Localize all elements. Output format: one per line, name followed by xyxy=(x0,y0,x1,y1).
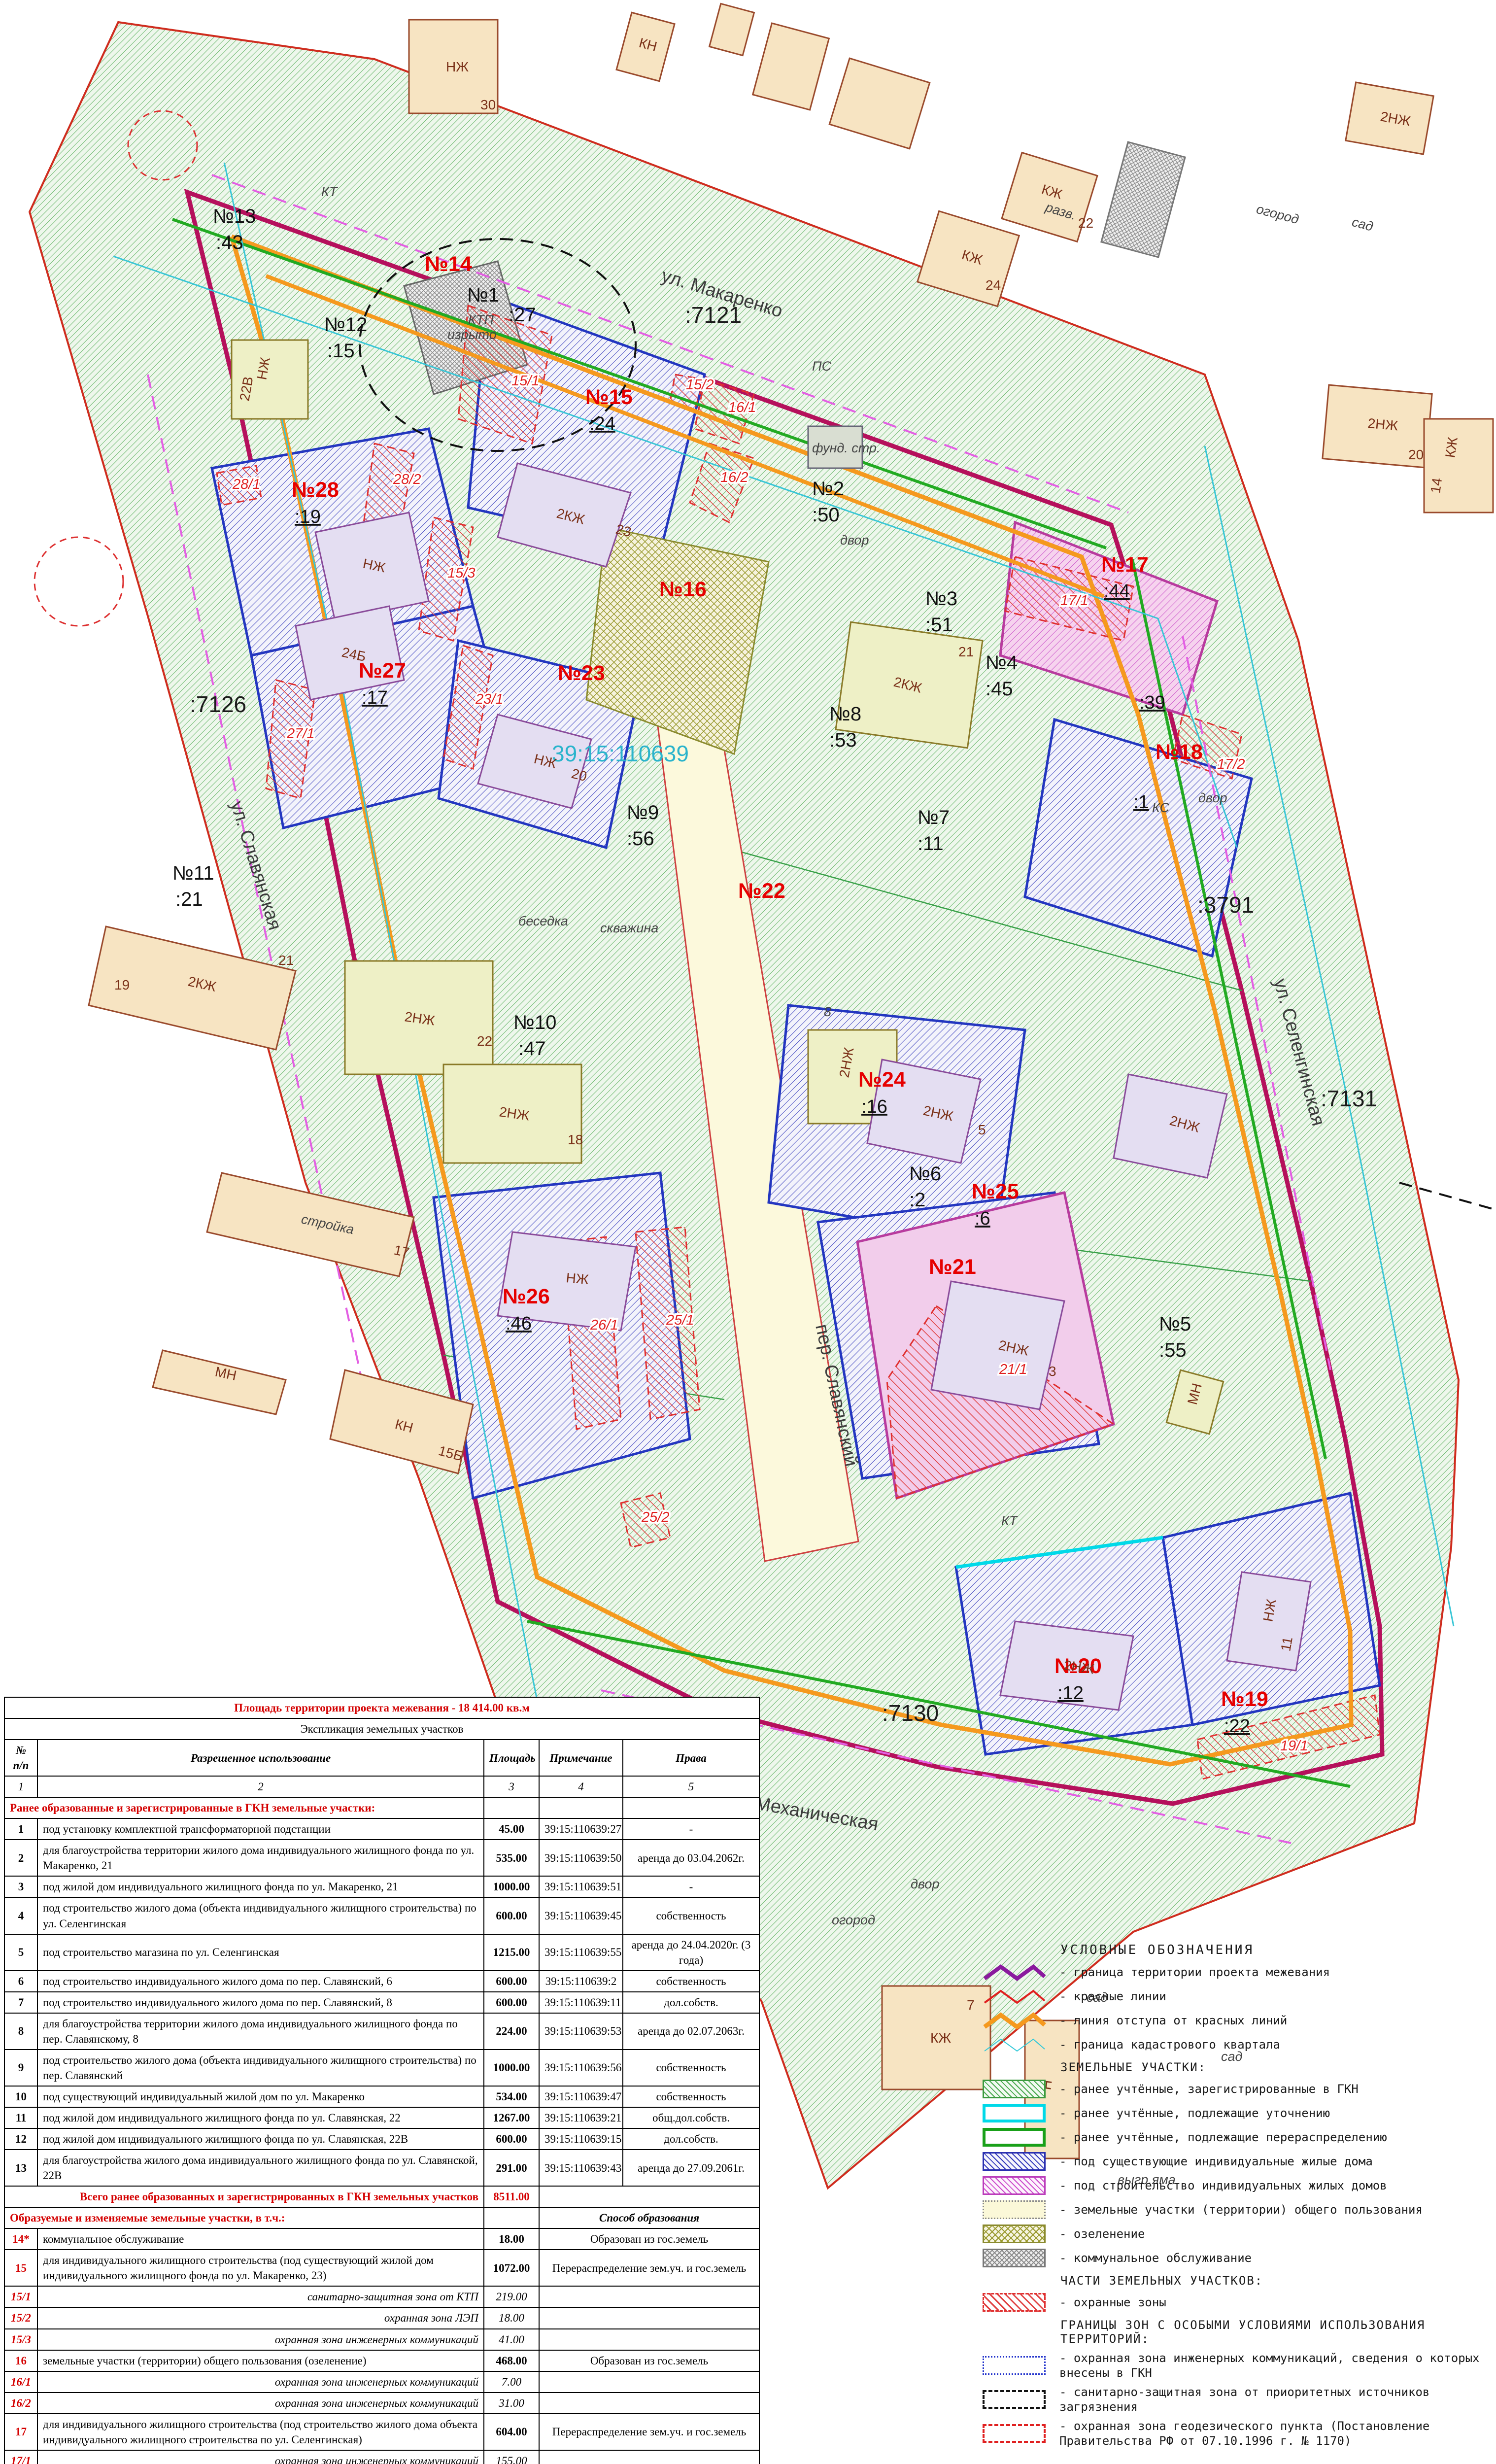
table-cell: под строительство жилого дома (объекта и… xyxy=(37,1897,484,1934)
table-cell: 39:15:110639:43 xyxy=(539,2150,623,2186)
map-label: №28 xyxy=(292,478,339,502)
table-row: 16/2охранная зона инженерных коммуникаци… xyxy=(4,2393,759,2414)
map-label: 21 xyxy=(958,644,974,659)
legend-swatch xyxy=(982,2103,1047,2123)
map-label: 20 xyxy=(1408,447,1424,462)
map-label: КС xyxy=(1152,800,1170,815)
legend-swatch xyxy=(982,2200,1047,2220)
drawing-sheet: ул. Макаренкоул. Славянскаяпер. Славянск… xyxy=(0,0,1496,2464)
map-label: :7130 xyxy=(882,1700,939,1726)
table-row: 2для благоустройства территории жилого д… xyxy=(4,1840,759,1876)
map-label: 23/1 xyxy=(475,691,503,707)
legend-label: - озеленение xyxy=(1059,2226,1145,2241)
table-cell: 41.00 xyxy=(484,2329,539,2350)
table-row: 1под установку комплектной трансформатор… xyxy=(4,1818,759,1840)
map-label: :7126 xyxy=(190,691,246,717)
legend-swatch xyxy=(982,2424,1047,2443)
table-cell: под жилой дом индивидуального жилищного … xyxy=(37,1876,484,1897)
table-row: 14*коммунальное обслуживание18.00Образов… xyxy=(4,2228,759,2250)
map-label: КТ xyxy=(1001,1513,1019,1528)
table-cell: 15/2 xyxy=(4,2307,37,2328)
table-row: 4под строительство жилого дома (объекта … xyxy=(4,1897,759,1934)
map-label: 28/2 xyxy=(393,472,421,487)
legend-swatch xyxy=(982,2224,1047,2244)
table-cell: 39:15:110639:47 xyxy=(539,2086,623,2107)
map-label: №12 xyxy=(324,314,367,336)
legend-item: - охранные зоны xyxy=(982,2293,1494,2312)
map-label: №6 xyxy=(909,1163,941,1185)
map-label: 3 xyxy=(1049,1364,1056,1379)
map-label: 22 xyxy=(1078,215,1093,231)
table-row: 8для благоустройства территории жилого д… xyxy=(4,2013,759,2050)
table-cell: для благоустройства жилого дома индивиду… xyxy=(37,2150,484,2186)
table-cell: 39:15:110639:2 xyxy=(539,1971,623,1992)
map-label: беседка xyxy=(518,914,568,928)
map-label: 11 xyxy=(1278,1636,1295,1652)
map-label: №15 xyxy=(585,385,633,409)
map-label: 19 xyxy=(114,977,130,992)
map-label: №2 xyxy=(812,478,844,500)
map-label: №14 xyxy=(425,252,472,276)
table-row: Ранее образованные и зарегистрированные … xyxy=(4,1797,759,1818)
table-cell: 15/1 xyxy=(4,2286,37,2307)
table-cell xyxy=(484,2207,539,2228)
table-cell: Способ образования xyxy=(539,2207,759,2228)
table-row: 6под строительство индивидуального жилог… xyxy=(4,1971,759,1992)
table-cell: Ранее образованные и зарегистрированные … xyxy=(4,1797,484,1818)
legend-swatch xyxy=(982,2293,1047,2312)
map-label: 2НЖ xyxy=(1367,415,1398,433)
map-label: :11 xyxy=(918,833,944,855)
table-cell: 13 xyxy=(4,2150,37,2186)
legend-item: - озеленение xyxy=(982,2224,1494,2244)
table-cell: 535.00 xyxy=(484,1840,539,1876)
legend-item: - ранее учтённые, зарегистрированные в Г… xyxy=(982,2079,1494,2099)
table-cell xyxy=(623,1797,759,1818)
table-cell xyxy=(539,2186,759,2207)
table-cell: коммунальное обслуживание xyxy=(37,2228,484,2250)
legend-swatch xyxy=(982,2356,1047,2375)
table-cell: собственность xyxy=(623,1897,759,1934)
table-cell xyxy=(539,2450,759,2464)
table-cell: санитарно-защитная зона от КТП xyxy=(37,2286,484,2307)
map-label: №23 xyxy=(558,661,605,685)
table-cell: 8 xyxy=(4,2013,37,2050)
table-cell: 39:15:110639:15 xyxy=(539,2128,623,2150)
map-label: :7121 xyxy=(685,302,742,328)
table-row: 17/1охранная зона инженерных коммуникаци… xyxy=(4,2450,759,2464)
map-label: КТП xyxy=(468,312,494,327)
table-cell: 1 xyxy=(4,1818,37,1840)
legend-item: - земельные участки (территории) общего … xyxy=(982,2200,1494,2220)
legend-swatch xyxy=(982,2152,1047,2171)
legend-label: - санитарно-защитная зона от приоритетны… xyxy=(1059,2385,1494,2414)
table-cell xyxy=(539,1797,623,1818)
table-cell: 468.00 xyxy=(484,2350,539,2371)
table-cell: 11 xyxy=(4,2107,37,2128)
table-cell: 39:15:110639:55 xyxy=(539,1934,623,1971)
map-label: 8 xyxy=(824,1004,831,1019)
map-label: НЖ xyxy=(565,1270,589,1287)
map-label: 17/2 xyxy=(1217,756,1245,772)
map-label: 21 xyxy=(278,953,294,968)
table-cell: 39:15:110639:56 xyxy=(539,2050,623,2086)
table-cell: общ.дол.собств. xyxy=(623,2107,759,2128)
table-cell: 5 xyxy=(623,1776,759,1797)
map-label: двор xyxy=(1198,790,1227,805)
map-label: 15/1 xyxy=(511,373,539,389)
map-label: :39 xyxy=(1139,692,1165,713)
map-label: №16 xyxy=(659,578,707,601)
map-label: №22 xyxy=(738,879,785,903)
table-cell: под жилой дом индивидуального жилищного … xyxy=(37,2128,484,2150)
map-label: :45 xyxy=(986,678,1013,700)
table-cell: 15/3 xyxy=(4,2329,37,2350)
table-row: 10под существующий индивидуальный жилой … xyxy=(4,2086,759,2107)
map-label: сад xyxy=(1350,214,1375,234)
map-label: №27 xyxy=(359,659,406,683)
table-row: 16/1охранная зона инженерных коммуникаци… xyxy=(4,2371,759,2393)
legend-section: УСЛОВНЫЕ ОБОЗНАЧЕНИЯ xyxy=(1060,1943,1494,1957)
legend-label: - охранная зона геодезического пункта (П… xyxy=(1059,2419,1494,2448)
map-label: НЖ xyxy=(446,59,469,74)
table-cell: 8511.00 xyxy=(484,2186,539,2207)
legend-label: - коммунальное обслуживание xyxy=(1059,2251,1252,2265)
table-cell: 600.00 xyxy=(484,2128,539,2150)
table-cell: 600.00 xyxy=(484,1897,539,1934)
map-label: :47 xyxy=(518,1038,546,1060)
table-cell: - xyxy=(623,1818,759,1840)
table-cell: под строительство индивидуального жилого… xyxy=(37,1992,484,2013)
map-label: :51 xyxy=(925,614,953,636)
map-label: :7131 xyxy=(1321,1086,1377,1111)
table-cell: охранная зона инженерных коммуникаций xyxy=(37,2393,484,2414)
table-cell: 600.00 xyxy=(484,1992,539,2013)
map-label: 22 xyxy=(477,1033,492,1049)
legend-label: - линия отступа от красных линий xyxy=(1059,2013,1287,2028)
table-row: Всего ранее образованных и зарегистриров… xyxy=(4,2186,759,2207)
table-cell: № п/п xyxy=(4,1740,37,1776)
table-cell: Перераспределение зем.уч. и гос.земель xyxy=(539,2414,759,2450)
table-cell: 2 xyxy=(37,1776,484,1797)
map-label: 30 xyxy=(480,97,496,112)
map-label: 27/1 xyxy=(286,726,314,742)
table-cell: для благоустройства территории жилого до… xyxy=(37,1840,484,1876)
table-cell: аренда до 02.07.2063г. xyxy=(623,2013,759,2050)
legend-label: - земельные участки (территории) общего … xyxy=(1059,2202,1423,2217)
table-cell: 1 xyxy=(4,1776,37,1797)
legend-item: - линия отступа от красных линий xyxy=(982,2011,1494,2030)
legend-item: - под существующие индивидуальные жилые … xyxy=(982,2152,1494,2171)
map-label: №25 xyxy=(972,1180,1019,1203)
table-cell: аренда до 03.04.2062г. xyxy=(623,1840,759,1876)
table-cell: земельные участки (территории) общего по… xyxy=(37,2350,484,2371)
table-cell: 2 xyxy=(4,1840,37,1876)
table-cell: 7 xyxy=(4,1992,37,2013)
explication-table: Площадь территории проекта межевания - 1… xyxy=(4,1697,760,2464)
map-label: №11 xyxy=(172,862,214,884)
table-row: 17для индивидуального жилищного строител… xyxy=(4,2414,759,2450)
table-row: 12345 xyxy=(4,1776,759,1797)
table-cell: Экспликация земельных участков xyxy=(4,1718,759,1740)
map-label: :50 xyxy=(812,504,840,526)
legend-label: - под строительство индивидуальных жилых… xyxy=(1059,2178,1387,2193)
table-cell: Примечание xyxy=(539,1740,623,1776)
legend-label: - граница территории проекта межевания xyxy=(1059,1965,1330,1980)
table-row: 15/3охранная зона инженерных коммуникаци… xyxy=(4,2329,759,2350)
table-cell: 16/2 xyxy=(4,2393,37,2414)
map-label: :46 xyxy=(506,1313,532,1334)
map-label: 21/1 xyxy=(999,1362,1027,1377)
table-cell: Всего ранее образованных и зарегистриров… xyxy=(4,2186,484,2207)
table-cell: 16/1 xyxy=(4,2371,37,2393)
map-label: №19 xyxy=(1221,1687,1268,1711)
map-label: 5 xyxy=(978,1122,986,1137)
legend-item: - граница кадастрового квартала xyxy=(982,2035,1494,2054)
map-label: 24 xyxy=(986,277,1001,293)
map-label: :55 xyxy=(1159,1339,1187,1361)
map-label: 7 xyxy=(967,1997,975,2013)
table-cell: собственность xyxy=(623,1971,759,1992)
table-cell: собственность xyxy=(623,2086,759,2107)
map-label: №13 xyxy=(213,205,256,227)
map-label: КТ xyxy=(321,184,339,199)
map-label: :21 xyxy=(175,889,203,910)
legend-swatch xyxy=(982,2248,1047,2268)
table-cell: 4 xyxy=(539,1776,623,1797)
map-label: :53 xyxy=(829,729,857,751)
map-label: :44 xyxy=(1104,581,1130,602)
table-cell: охранная зона ЛЭП xyxy=(37,2307,484,2328)
table-cell: 1215.00 xyxy=(484,1934,539,1971)
table-cell xyxy=(539,2286,759,2307)
geodetic-point-zone xyxy=(34,537,123,626)
table-cell: для благоустройства территории жилого до… xyxy=(37,2013,484,2050)
table-cell: собственность xyxy=(623,2050,759,2086)
map-label: огород xyxy=(832,1913,875,1927)
map-label: 16/1 xyxy=(728,400,756,415)
table-cell: 1000.00 xyxy=(484,1876,539,1897)
map-label: двор xyxy=(840,533,869,548)
table-cell: 291.00 xyxy=(484,2150,539,2186)
table-cell: 600.00 xyxy=(484,1971,539,1992)
table-cell: Площадь территории проекта межевания - 1… xyxy=(4,1697,759,1718)
map-label: скважина xyxy=(600,921,658,935)
table-cell: 39:15:110639:53 xyxy=(539,2013,623,2050)
table-cell: под установку комплектной трансформаторн… xyxy=(37,1818,484,1840)
legend-swatch xyxy=(982,2176,1047,2195)
table-cell: Образован из гос.земель xyxy=(539,2350,759,2371)
legend-label: - охранная зона инженерных коммуникаций,… xyxy=(1059,2351,1494,2380)
table-cell: 3 xyxy=(484,1776,539,1797)
table-row: Площадь территории проекта межевания - 1… xyxy=(4,1697,759,1718)
map-label: :19 xyxy=(295,507,321,527)
table-row: 15/2охранная зона ЛЭП18.00 xyxy=(4,2307,759,2328)
table-cell: Перераспределение зем.уч. и гос.земель xyxy=(539,2250,759,2286)
map-label: 26/1 xyxy=(590,1317,618,1333)
legend-label: - ранее учтённые, подлежащие перераспред… xyxy=(1059,2130,1387,2145)
table-cell: 16 xyxy=(4,2350,37,2371)
table-cell xyxy=(484,1797,539,1818)
map-label: 17/1 xyxy=(1060,593,1088,609)
table-cell: Образуемые и изменяемые земельные участк… xyxy=(4,2207,484,2228)
table-cell: 1000.00 xyxy=(484,2050,539,2086)
map-label: :15 xyxy=(327,340,355,362)
legend-swatch xyxy=(982,1986,1047,2006)
map-label: ПС xyxy=(812,359,832,374)
map-label: 25/1 xyxy=(666,1312,694,1328)
map-label: №17 xyxy=(1101,553,1149,577)
table-row: 5под строительство магазина по ул. Селен… xyxy=(4,1934,759,1971)
table-cell: 3 xyxy=(4,1876,37,1897)
map-label: №4 xyxy=(986,652,1018,674)
map-label: :43 xyxy=(216,232,243,253)
legend-label: - красные линии xyxy=(1059,1989,1166,2004)
table-cell: 9 xyxy=(4,2050,37,2086)
map-label: 19/1 xyxy=(1280,1738,1308,1754)
map-label: №24 xyxy=(858,1068,906,1092)
legend-label: - граница кадастрового квартала xyxy=(1059,2037,1280,2052)
map-label: №9 xyxy=(627,802,659,823)
legend-section: ГРАНИЦЫ ЗОН С ОСОБЫМИ УСЛОВИЯМИ ИСПОЛЬЗО… xyxy=(1060,2318,1494,2346)
table-row: 7под строительство индивидуального жилог… xyxy=(4,1992,759,2013)
legend-label: - ранее учтённые, зарегистрированные в Г… xyxy=(1059,2082,1359,2096)
table-row: 15для индивидуального жилищного строител… xyxy=(4,2250,759,2286)
table-cell xyxy=(539,2307,759,2328)
map-label: №21 xyxy=(929,1255,976,1279)
table-cell: Площадь xyxy=(484,1740,539,1776)
table-cell: 1267.00 xyxy=(484,2107,539,2128)
table-cell: 534.00 xyxy=(484,2086,539,2107)
table-row: № п/пРазрешенное использованиеПлощадьПри… xyxy=(4,1740,759,1776)
legend-label: - охранные зоны xyxy=(1059,2295,1166,2310)
legend-item: - охранная зона геодезического пункта (П… xyxy=(982,2419,1494,2448)
map-label: №10 xyxy=(513,1012,556,1033)
table-cell: дол.собств. xyxy=(623,1992,759,2013)
table-cell xyxy=(539,2393,759,2414)
table-cell: 18.00 xyxy=(484,2307,539,2328)
map-label: КЖ xyxy=(1442,436,1461,459)
map-label: №26 xyxy=(503,1285,550,1308)
table-row: 9под строительство жилого дома (объекта … xyxy=(4,2050,759,2086)
map-label: :27 xyxy=(509,304,536,326)
map-label: огород xyxy=(1255,202,1300,227)
map-label: фунд. стр. xyxy=(812,441,880,455)
legend-item: - охранная зона инженерных коммуникаций,… xyxy=(982,2351,1494,2380)
table-cell: - xyxy=(623,1876,759,1897)
map-label: :24 xyxy=(589,413,615,434)
legend-swatch xyxy=(982,1962,1047,1982)
legend-item: - коммунальное обслуживание xyxy=(982,2248,1494,2268)
explication-block: Площадь территории проекта межевания - 1… xyxy=(4,1697,759,2464)
table-cell: 1072.00 xyxy=(484,2250,539,2286)
map-legend: УСЛОВНЫЕ ОБОЗНАЧЕНИЯ- граница территории… xyxy=(982,1943,1494,2453)
map-label: 28/1 xyxy=(232,477,260,492)
map-label: двор xyxy=(911,1877,939,1891)
legend-label: - под существующие индивидуальные жилые … xyxy=(1059,2154,1373,2169)
map-label: 15/3 xyxy=(447,565,475,581)
table-cell: под строительство жилого дома (объекта и… xyxy=(37,2050,484,2086)
map-label: :2 xyxy=(909,1189,925,1211)
legend-label: - ранее учтённые, подлежащие уточнению xyxy=(1059,2106,1330,2121)
map-label: 18 xyxy=(568,1132,583,1147)
table-cell: под строительство индивидуального жилого… xyxy=(37,1971,484,1992)
table-cell: Образован из гос.земель xyxy=(539,2228,759,2250)
table-cell: 17 xyxy=(4,2414,37,2450)
table-row: Образуемые и изменяемые земельные участк… xyxy=(4,2207,759,2228)
table-row: Экспликация земельных участков xyxy=(4,1718,759,1740)
table-cell: аренда до 24.04.2020г. (3 года) xyxy=(623,1934,759,1971)
map-label: :12 xyxy=(1057,1683,1084,1704)
legend-item: - ранее учтённые, подлежащие уточнению xyxy=(982,2103,1494,2123)
map-label: №8 xyxy=(829,703,861,725)
map-label: :6 xyxy=(975,1208,990,1229)
map-label: :56 xyxy=(627,828,654,850)
table-cell: 10 xyxy=(4,2086,37,2107)
table-cell: 39:15:110639:11 xyxy=(539,1992,623,2013)
map-label: изрыто xyxy=(447,327,497,342)
table-cell: Разрешенное использование xyxy=(37,1740,484,1776)
table-cell: 15 xyxy=(4,2250,37,2286)
map-label: №18 xyxy=(1156,740,1203,764)
map-label: №5 xyxy=(1159,1313,1191,1335)
table-cell: 17/1 xyxy=(4,2450,37,2464)
table-cell: аренда до 27.09.2061г. xyxy=(623,2150,759,2186)
legend-item: - ранее учтённые, подлежащие перераспред… xyxy=(982,2127,1494,2147)
table-cell: 39:15:110639:21 xyxy=(539,2107,623,2128)
table-cell: 219.00 xyxy=(484,2286,539,2307)
table-cell: 39:15:110639:51 xyxy=(539,1876,623,1897)
map-label: :22 xyxy=(1224,1716,1250,1737)
table-cell: 6 xyxy=(4,1971,37,1992)
legend-section: ЗЕМЕЛЬНЫЕ УЧАСТКИ: xyxy=(1060,2060,1494,2074)
table-cell: для индивидуального жилищного строительс… xyxy=(37,2414,484,2450)
table-cell: охранная зона инженерных коммуникаций xyxy=(37,2329,484,2350)
table-cell: Права xyxy=(623,1740,759,1776)
table-row: 12под жилой дом индивидуального жилищног… xyxy=(4,2128,759,2150)
table-cell: 4 xyxy=(4,1897,37,1934)
table-cell: 5 xyxy=(4,1934,37,1971)
legend-item: - санитарно-защитная зона от приоритетны… xyxy=(982,2385,1494,2414)
table-cell: 12 xyxy=(4,2128,37,2150)
table-row: 16земельные участки (территории) общего … xyxy=(4,2350,759,2371)
map-label: 16/2 xyxy=(720,470,748,485)
table-cell: 14* xyxy=(4,2228,37,2250)
table-cell: 39:15:110639:27 xyxy=(539,1818,623,1840)
map-label: :3791 xyxy=(1197,892,1254,918)
map-label: №1 xyxy=(467,284,499,306)
map-label: №7 xyxy=(918,807,950,828)
table-row: 3под жилой дом индивидуального жилищного… xyxy=(4,1876,759,1897)
table-cell: дол.собств. xyxy=(623,2128,759,2150)
map-label: 25/2 xyxy=(641,1509,669,1525)
table-cell: 45.00 xyxy=(484,1818,539,1840)
table-cell xyxy=(539,2329,759,2350)
map-label: 15/2 xyxy=(686,377,714,393)
legend-swatch xyxy=(982,2390,1047,2409)
table-cell: 7.00 xyxy=(484,2371,539,2393)
map-label: :1 xyxy=(1133,792,1149,813)
table-cell: охранная зона инженерных коммуникаций xyxy=(37,2371,484,2393)
table-cell: 39:15:110639:45 xyxy=(539,1897,623,1934)
map-label: 39:15:110639 xyxy=(552,741,689,766)
table-cell: 18.00 xyxy=(484,2228,539,2250)
table-cell: охранная зона инженерных коммуникаций xyxy=(37,2450,484,2464)
table-cell xyxy=(539,2371,759,2393)
map-label: :16 xyxy=(861,1096,887,1117)
legend-item: - под строительство индивидуальных жилых… xyxy=(982,2176,1494,2195)
map-label: :17 xyxy=(362,687,388,708)
